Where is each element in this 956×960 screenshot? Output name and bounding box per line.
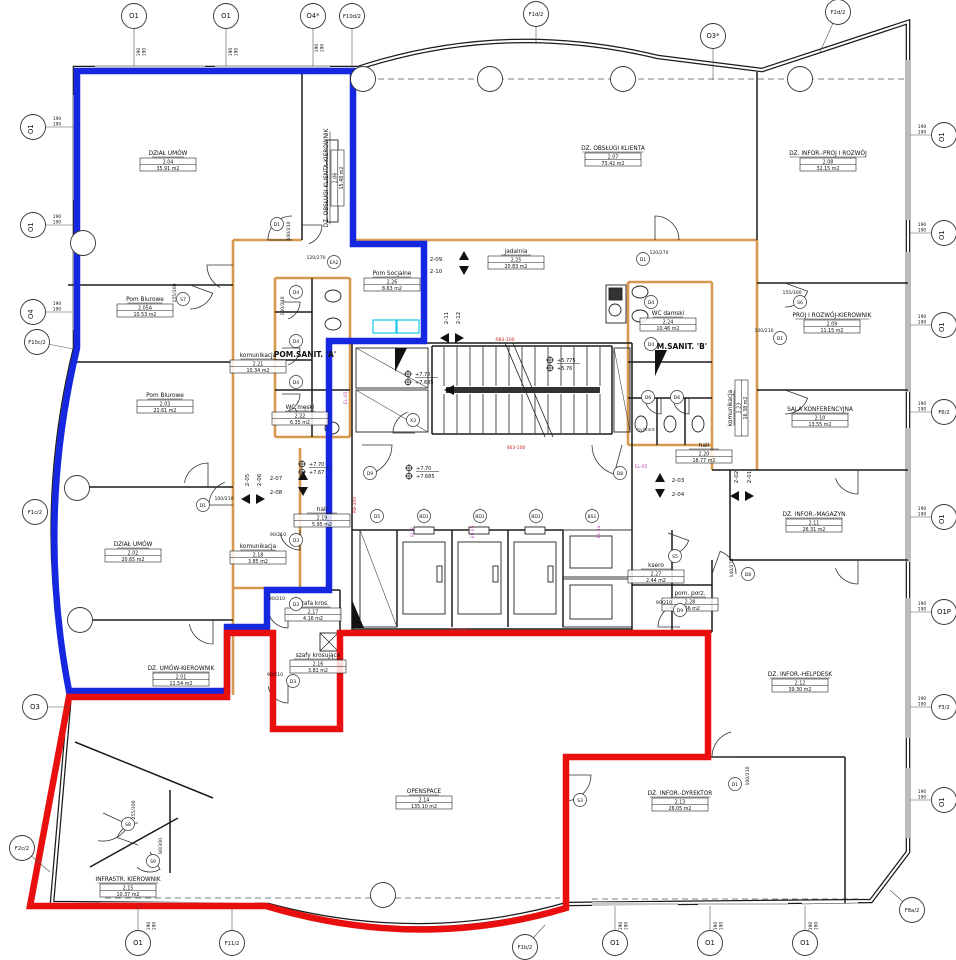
door-tag: X3 xyxy=(407,414,420,427)
flight-arrow: 2-10 xyxy=(430,266,469,275)
door-tag: D8 xyxy=(742,568,755,581)
door-code: BD1 xyxy=(419,514,429,520)
wall-dimension: 190190 xyxy=(918,401,927,413)
grid-marker-label: O4 xyxy=(27,309,35,319)
label: 190 xyxy=(320,44,326,53)
door-code: D4 xyxy=(293,339,300,345)
flight-arrow: 2-08 xyxy=(270,487,308,496)
flight-arrow: 2-09 xyxy=(430,251,469,263)
room-label: Pom Socjalne2.268.63 m2 xyxy=(364,271,420,292)
flight-arrow-label: 2-07 xyxy=(270,476,283,482)
flight-arrow-label: 2-12 xyxy=(456,312,462,324)
label: 190 xyxy=(814,922,820,931)
column-bubble xyxy=(788,67,813,92)
level-marker: +7.70+7.685 xyxy=(404,370,438,386)
door-tag: D3 xyxy=(287,675,300,688)
grid-markers: O1O1O4*F10d/2F1d/2O3*F2d/2O1O1O4F10c/2F1… xyxy=(10,0,956,960)
sanitary-fixture xyxy=(325,290,341,302)
door-code: BD1 xyxy=(475,514,485,520)
label: 190 xyxy=(918,320,927,326)
grid-marker-label: O1 xyxy=(938,322,946,332)
grid-marker-label: F11/2 xyxy=(225,941,240,947)
door-tag: D3 xyxy=(290,598,303,611)
door-code: X3 xyxy=(410,418,416,424)
level-marker: +7.70+7.685 xyxy=(405,464,439,480)
label: 190 xyxy=(918,789,927,795)
door-swing xyxy=(712,732,738,757)
floorplan-canvas: DZIAŁ UMÓW2.0435.91 m2DZ. OBSŁUGI KLIENT… xyxy=(0,0,956,960)
flight-arrow: 2-04 xyxy=(655,489,685,498)
wall-dimension: 190190 xyxy=(53,214,62,226)
column-bubble xyxy=(478,67,503,92)
door-dimension: 90/210 xyxy=(656,600,672,606)
room-label: INFRASTR. KIEROWNIK2.1510.37 m2 xyxy=(95,877,160,898)
grid-marker-label: F8a/2 xyxy=(905,908,920,914)
sanitary-fixture xyxy=(325,318,341,330)
label: 190 xyxy=(918,407,927,413)
door-dimension: 90/300 xyxy=(158,838,164,854)
room-label: szafy krosujące2.163.81 m2 xyxy=(290,653,346,674)
room-area: 10.37 m2 xyxy=(117,892,140,898)
tiny-annotation: RB3-100 xyxy=(495,337,514,343)
grid-marker-label: O1 xyxy=(938,514,946,524)
room-name: PROJ I ROZWÓJ-KIEROWNIK xyxy=(793,312,872,319)
door-code: D6 xyxy=(674,395,681,401)
sanitary-block-label: POM.SANIT. 'A' xyxy=(274,350,336,359)
room-area: 18.77 m2 xyxy=(693,458,716,464)
column-bubble xyxy=(371,883,396,908)
wall-dimension: 190190 xyxy=(136,48,148,57)
flight-arrow: 2-03 xyxy=(655,473,685,484)
label: 190 xyxy=(918,795,927,801)
column-bubble xyxy=(611,67,636,92)
door-code: S7 xyxy=(180,297,186,303)
flight-arrow-label: 2-09 xyxy=(430,257,443,263)
flight-arrow: 2-02 xyxy=(730,471,740,501)
door-code: D4 xyxy=(293,380,300,386)
flight-arrow-label: 2-02 xyxy=(734,471,740,483)
label: 190 xyxy=(918,314,927,320)
room-area: 20.83 m2 xyxy=(505,264,528,270)
door-tag: D1 xyxy=(729,778,742,791)
door-tag: D5 xyxy=(371,510,384,523)
flight-arrow: 2-11 xyxy=(440,312,450,343)
label: 190 xyxy=(228,48,234,57)
room-number: 2.12 xyxy=(795,680,806,686)
room-area: 10.46 m2 xyxy=(657,326,680,332)
grid-marker: O1 xyxy=(21,213,74,238)
wall-dimension: 190190 xyxy=(53,301,62,313)
level-value: +7.70 xyxy=(415,372,430,378)
door-dimension: 90/210 xyxy=(269,596,285,602)
grid-marker: F1c/2 xyxy=(23,500,48,525)
room-number: 2.27 xyxy=(651,571,662,577)
room-name: OPENSPACE xyxy=(407,789,442,795)
door-tag: S3 xyxy=(574,794,587,807)
grid-marker-label: O1 xyxy=(938,132,946,142)
label: 190 xyxy=(918,696,927,702)
room-number: 2.25 xyxy=(511,257,522,263)
flight-arrow: 2-01 xyxy=(745,471,754,501)
door-code: D9 xyxy=(677,608,684,614)
sanitary-fixture xyxy=(664,416,676,432)
label: 190 xyxy=(314,44,320,53)
door-code: D1 xyxy=(640,257,647,263)
label: 190 xyxy=(53,220,62,226)
grid-marker: F11/2 xyxy=(220,908,245,956)
room-number: 2.01 xyxy=(176,674,187,680)
room-area: 2.44 m2 xyxy=(646,578,666,584)
room-area: 35.91 m2 xyxy=(157,166,180,172)
tiny-annotation: EL-3a xyxy=(596,525,602,538)
door-tag: D8 xyxy=(614,467,627,480)
door-tag: BS1 xyxy=(586,510,599,523)
door-code: D4 xyxy=(648,300,655,306)
door-dimension: 100/210 xyxy=(745,766,751,785)
label: 190 xyxy=(918,512,927,518)
room-label: DZ. INFOR.-DYREKTOR2.1326.05 m2 xyxy=(648,791,713,812)
wall-dimension: 190190 xyxy=(918,789,927,801)
flight-arrow: 2-06 xyxy=(256,473,265,504)
room-area: 20.65 m2 xyxy=(122,557,145,563)
label: 190 xyxy=(918,506,927,512)
door-swing xyxy=(190,285,213,309)
room-number: 2.09 xyxy=(827,321,838,327)
room-area: 10.53 m2 xyxy=(134,312,157,318)
exterior-walls xyxy=(52,22,908,925)
door-code: D8 xyxy=(617,471,624,477)
room-name: DZIAŁ UMÓW xyxy=(149,150,188,157)
door-tag: S7 xyxy=(177,293,190,306)
label: 190 xyxy=(152,922,158,931)
level-value: +5.76 xyxy=(557,366,572,372)
flight-arrow-label: 2-03 xyxy=(672,478,685,484)
room-number: 2.14 xyxy=(419,797,430,803)
grid-marker-label: O1 xyxy=(221,12,231,20)
label: 190 xyxy=(918,702,927,708)
flight-arrow-label: 2-06 xyxy=(257,473,263,486)
tiny-annotation: hydrant xyxy=(637,427,655,433)
label: 190 xyxy=(918,124,927,130)
door-tag: S9 xyxy=(147,855,160,868)
door-code: EA2 xyxy=(330,260,339,266)
grid-marker-label: O1 xyxy=(27,222,35,232)
grid-marker-label: O3 xyxy=(30,703,40,711)
room-area: 11.54 m2 xyxy=(170,681,193,687)
grid-marker-label: F1c/2 xyxy=(28,510,42,516)
wall-dimension: 190190 xyxy=(918,314,927,326)
door-code: D3 xyxy=(293,602,300,608)
room-name: Pom Socjalne xyxy=(373,271,412,277)
level-value: +7.685 xyxy=(415,380,434,386)
label: 190 xyxy=(53,116,62,122)
door-code: D4 xyxy=(293,290,300,296)
label: 190 xyxy=(918,222,927,228)
tiny-annotation: EL-05 xyxy=(343,392,349,405)
room-area: 6.35 m2 xyxy=(290,420,310,426)
room-number: 2.28 xyxy=(685,599,696,605)
door-tag: D1 xyxy=(197,499,210,512)
door-code: S8 xyxy=(125,822,131,828)
wall-dimension: 190190 xyxy=(228,48,240,57)
room-number: 2.10 xyxy=(815,415,826,421)
room-area: 3.85 m2 xyxy=(248,559,268,565)
door-code: D3 xyxy=(293,538,300,544)
room-label: DZIAŁ UMÓW2.0435.91 m2 xyxy=(140,150,196,172)
room-number: 2.04 xyxy=(163,159,174,165)
window-segments xyxy=(75,60,908,904)
door-dimension: 255/300 xyxy=(131,800,137,819)
room-label: Pom Biurowe2.0321.61 m2 xyxy=(137,393,193,414)
door-tag: D6 xyxy=(671,391,684,404)
door-code: D1 xyxy=(777,336,784,342)
label: 190 xyxy=(53,301,62,307)
door-tag: BD1 xyxy=(474,510,487,523)
door-dimension: 155/300 xyxy=(782,290,801,296)
room-name: Pom Biurowe xyxy=(146,393,184,399)
room-label: PROJ I ROZWÓJ-KIEROWNIK2.0911.15 m2 xyxy=(793,312,872,334)
room-name: INFRASTR. KIEROWNIK xyxy=(95,877,160,883)
label: 190 xyxy=(146,922,152,931)
tiny-annotation: EL-25 xyxy=(470,526,476,539)
door-code: D4 xyxy=(648,342,655,348)
room-label: DZ. INFOR.-MAGAZYN2.1126.31 m2 xyxy=(783,512,846,533)
label: 190 xyxy=(624,922,630,931)
room-area: 13.55 m2 xyxy=(809,422,832,428)
label: 190 xyxy=(142,48,148,57)
room-name: komunikacja xyxy=(240,353,277,359)
level-value: +5.775 xyxy=(557,358,576,364)
room-label: komunikacja2.183.85 m2 xyxy=(230,544,286,565)
door-tag: D9 xyxy=(364,467,377,480)
door-dimension: 100/210 xyxy=(280,296,286,315)
grid-marker-label: O3* xyxy=(706,32,720,40)
room-number: 2.18 xyxy=(253,552,264,558)
room-label: Pom Biurowe2.05A10.53 m2 xyxy=(117,297,173,318)
flight-arrow-label: 2-11 xyxy=(444,312,450,324)
label: 190 xyxy=(719,922,725,931)
grid-marker: F10d/2 xyxy=(340,4,365,71)
grid-marker-label: O1 xyxy=(800,939,810,947)
door-code: D8 xyxy=(745,572,752,578)
door-tag: BD1 xyxy=(530,510,543,523)
grid-marker-label: O1 xyxy=(938,230,946,240)
room-number: 2.26 xyxy=(387,279,398,285)
label: 190 xyxy=(234,48,240,57)
wall-dimension: 190190 xyxy=(314,44,326,53)
label: 190 xyxy=(918,130,927,136)
room-area: 10.34 m2 xyxy=(247,368,270,374)
room-name: pom. porz. xyxy=(674,591,705,597)
wall-dimension: 190190 xyxy=(918,124,927,136)
grid-marker: O3* xyxy=(701,24,726,81)
column-bubble xyxy=(68,608,93,633)
room-name: hall xyxy=(317,507,328,513)
door-code: D6 xyxy=(645,395,652,401)
room-number: 2.20 xyxy=(699,451,710,457)
zone-blue-outline xyxy=(54,71,424,691)
stair-direction-arrow xyxy=(444,385,454,395)
door-tag: D4 xyxy=(645,296,658,309)
room-number: 2.02 xyxy=(128,550,139,556)
room-number: 2.11 xyxy=(809,520,820,526)
wall-dimension: 190190 xyxy=(713,922,725,931)
wall-dimension: 190190 xyxy=(918,696,927,708)
door-dimension: 100/210 xyxy=(286,221,292,240)
door-dimension: 100/210 xyxy=(754,328,773,334)
floorplan-page: DZIAŁ UMÓW2.0435.91 m2DZ. OBSŁUGI KLIENT… xyxy=(0,0,956,960)
label: 190 xyxy=(136,48,142,57)
room-name: DZ. INFOR.-DYREKTOR xyxy=(648,791,713,797)
flight-arrow-label: 2-05 xyxy=(245,473,251,486)
room-label: komunikacja2.2316.38 m2 xyxy=(728,380,749,436)
room-number: 2.15 xyxy=(123,885,134,891)
sanitary-fixture xyxy=(632,286,648,298)
room-label: jadalnia2.2520.83 m2 xyxy=(488,249,544,270)
room-label: DZ. OBSŁUGI KLIENTA-KIEROWNIK2.0615.48 m… xyxy=(324,128,345,227)
door-dimension: 90/210 xyxy=(270,532,286,538)
grid-marker-label: O1 xyxy=(610,939,620,947)
grid-marker-label: F3/2 xyxy=(938,705,949,711)
door-tags: D1EA2D4D4D4D1D4D4D6D6S7D1D3D3D3S8S9S6D1S… xyxy=(122,218,807,868)
grid-marker-label: O4* xyxy=(306,12,320,20)
column-bubble xyxy=(65,476,90,501)
door-code: S6 xyxy=(797,300,803,306)
room-number: 2.03 xyxy=(160,401,171,407)
wall-dimension: 190190 xyxy=(918,222,927,234)
room-area: 135.10 m2 xyxy=(411,804,437,810)
room-label: ksero2.272.44 m2 xyxy=(628,563,684,584)
column-bubble xyxy=(351,67,376,92)
label: 190 xyxy=(53,214,62,220)
door-code: BD1 xyxy=(531,514,541,520)
room-area: 4.16 m2 xyxy=(303,616,323,622)
door-code: D5 xyxy=(374,514,381,520)
room-area: 21.61 m2 xyxy=(154,408,177,414)
level-value: +7.70 xyxy=(309,462,324,468)
door-tag: D4 xyxy=(290,335,303,348)
room-name: WC damski xyxy=(652,311,685,317)
door-tag: D1 xyxy=(774,332,787,345)
wall-dimension: 190190 xyxy=(53,116,62,128)
room-area: 3.81 m2 xyxy=(308,668,328,674)
door-tag: D3 xyxy=(290,534,303,547)
room-number: 2.21 xyxy=(253,361,264,367)
label: 190 xyxy=(713,922,719,931)
door-swings xyxy=(98,216,858,872)
room-name: DZ. OBSŁUGI KLIENTA xyxy=(581,146,645,152)
room-name: DZ. UMÓW-KIEROWNIK xyxy=(148,665,215,672)
room-name: ksero xyxy=(648,563,664,569)
door-dimension: 155/300 xyxy=(172,283,178,302)
room-label: SALA KONFERENCYJNA2.1013.55 m2 xyxy=(787,407,853,428)
door-tag: D1 xyxy=(271,218,284,231)
room-area: 39.30 m2 xyxy=(789,687,812,693)
door-code: D1 xyxy=(732,782,739,788)
flight-arrow: 2-12 xyxy=(455,312,464,343)
door-tag: S6 xyxy=(794,296,807,309)
building-outline xyxy=(52,22,908,925)
grid-marker: O1 xyxy=(21,115,74,140)
door-swing xyxy=(655,216,679,240)
level-value: +7.67 xyxy=(309,470,324,476)
room-number: 2.07 xyxy=(608,154,619,160)
room-name: DZ. INFOR.-PROJ I ROZWÓJ xyxy=(789,150,867,157)
flight-arrow: 2-05 xyxy=(241,473,251,504)
label: 190 xyxy=(918,401,927,407)
wall-dimension: 190190 xyxy=(808,922,820,931)
door-swing xyxy=(302,225,322,244)
room-number: 2.23 xyxy=(736,403,742,414)
sanitary-fixture xyxy=(609,304,621,316)
tiny-annotation: 463-100 xyxy=(507,445,526,451)
room-area: 8.63 m2 xyxy=(382,286,402,292)
door-dimension: 120/270 xyxy=(649,250,668,256)
door-swing xyxy=(835,560,858,584)
grid-marker-label: F6/2 xyxy=(938,410,949,416)
door-tag: D1 xyxy=(637,253,650,266)
door-swing xyxy=(207,265,233,288)
door-dimension: 100/210 xyxy=(214,496,233,502)
room-name: Pom Biurowe xyxy=(126,297,164,303)
label: 190 xyxy=(53,307,62,313)
flight-arrow-label: 2-01 xyxy=(747,471,753,483)
door-code: S9 xyxy=(150,859,156,865)
room-label: WC męski2.226.35 m2 xyxy=(272,405,328,426)
room-label: WC damski2.2410.46 m2 xyxy=(640,311,696,332)
room-area: 16.38 m2 xyxy=(743,397,749,420)
sanitary-fixture xyxy=(692,416,704,432)
door-swing xyxy=(184,463,208,487)
door-tag: BD1 xyxy=(418,510,431,523)
door-tag: EA2 xyxy=(328,256,341,269)
room-name: komunikacja xyxy=(728,389,734,426)
room-label: DZ. OBSŁUGI KLIENTA2.0773.42 m2 xyxy=(581,146,645,167)
room-label: DZIAŁ UMÓW2.0220.65 m2 xyxy=(105,541,161,563)
grid-marker: F10c/2 xyxy=(25,330,75,355)
grid-marker-label: F1b/2 xyxy=(518,945,533,951)
room-area: 15.48 m2 xyxy=(339,167,345,190)
room-name: WC męski xyxy=(286,405,315,411)
room-name: jadalnia xyxy=(504,249,528,255)
room-label: DZ. INFOR.-HELPDESK2.1239.30 m2 xyxy=(768,672,832,693)
grid-marker-label: O1 xyxy=(27,124,35,134)
door-code: D1 xyxy=(274,222,281,228)
level-value: +7.685 xyxy=(416,474,435,480)
door-code: D9 xyxy=(367,471,374,477)
room-number: 2.22 xyxy=(295,413,306,419)
label: 190 xyxy=(918,601,927,607)
grid-marker: O4 xyxy=(21,300,74,325)
door-tag: D9 xyxy=(674,604,687,617)
door-code: BS1 xyxy=(588,514,597,520)
room-number: 2.13 xyxy=(675,799,686,805)
interior-walls xyxy=(68,68,908,905)
grid-marker-label: O1 xyxy=(133,939,143,947)
room-label: hall2.195.95 m2 xyxy=(294,507,350,528)
room-name: DZ. OBSŁUGI KLIENTA-KIEROWNIK xyxy=(324,128,330,227)
grid-marker-label: F10d/2 xyxy=(343,14,361,20)
room-label: DZ. INFOR.-PROJ I ROZWÓJ2.0832.15 m2 xyxy=(789,150,867,172)
door-tag: D4 xyxy=(645,338,658,351)
room-name: SALA KONFERENCYJNA xyxy=(787,407,853,413)
grid-marker: F1b/2 xyxy=(513,925,546,960)
tiny-annotation: RB-100 xyxy=(352,497,358,514)
door-tag: D6 xyxy=(642,391,655,404)
room-name: hall xyxy=(699,443,710,449)
door-code: S5 xyxy=(672,554,678,560)
door-code: D1 xyxy=(200,503,207,509)
